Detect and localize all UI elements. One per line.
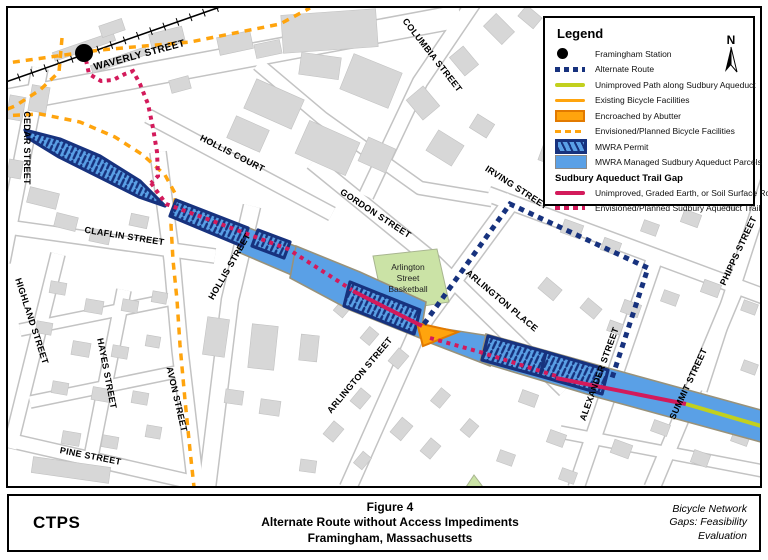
building (430, 388, 450, 409)
building (299, 334, 320, 362)
street-label: CEDAR STREET (22, 111, 32, 185)
building (259, 399, 281, 417)
building (129, 213, 149, 228)
legend-item: Unimproved Path along Sudbury Aqueduct (555, 77, 745, 93)
park-label: Basketball (388, 284, 427, 294)
building (496, 450, 515, 467)
building (227, 116, 270, 153)
legend-item: MWRA Managed Sudbury Aqueduct Parcels (555, 155, 745, 171)
legend-box: Legend N Framingham Station Alternate Ro… (543, 16, 755, 206)
building (299, 459, 317, 473)
building (51, 381, 69, 396)
planned-trail-icon (555, 206, 587, 210)
building (741, 360, 759, 375)
legend-item: Framingham Station (555, 46, 745, 62)
building (449, 46, 478, 76)
mwra-permit-icon (555, 139, 587, 154)
building (299, 52, 342, 79)
encroached-icon (555, 110, 587, 122)
building (580, 298, 602, 320)
report-name: Bicycle Network Gaps: Feasibility Evalua… (597, 503, 759, 544)
building (350, 388, 371, 409)
building (538, 277, 562, 301)
building (640, 220, 659, 237)
station-dot-icon (555, 48, 587, 59)
building (121, 299, 139, 314)
building (111, 345, 129, 360)
building (131, 391, 149, 406)
building (340, 54, 402, 109)
figure-name: Alternate Route without Access Impedimen… (183, 515, 597, 531)
framingham-station-marker (75, 44, 93, 62)
legend-gap-header: Sudbury Aqueduct Trail Gap (555, 173, 745, 184)
north-arrow: N (721, 34, 741, 79)
legend-item: Envisioned/Planned Sudbury Aqueduct Trai… (555, 201, 745, 217)
building (518, 5, 542, 29)
legend-item: Alternate Route (555, 62, 745, 78)
building (650, 419, 670, 436)
legend-item: Existing Bicycle Facilities (555, 93, 745, 109)
mwra-parcel-icon (555, 155, 587, 169)
building (483, 13, 514, 44)
park-label: Arlington (391, 262, 425, 272)
building (469, 114, 494, 138)
unimproved-path-icon (555, 83, 587, 87)
legend-item: MWRA Permit (555, 139, 745, 155)
building (151, 291, 168, 304)
figure-number: Figure 4 (183, 500, 597, 516)
building (420, 438, 441, 459)
legend-item: Envisioned/Planned Bicycle Facilities (555, 124, 745, 140)
building (248, 324, 278, 370)
north-label: N (721, 34, 741, 46)
figure-title: Figure 4 Alternate Route without Access … (183, 500, 597, 547)
soil-road-icon (555, 191, 587, 195)
building (360, 326, 379, 345)
building (390, 417, 413, 441)
building (224, 389, 244, 405)
green-space (466, 475, 483, 487)
building (145, 425, 162, 439)
building (323, 421, 344, 442)
building (426, 130, 464, 166)
existing-bike-icon (555, 99, 587, 102)
building (101, 435, 119, 450)
station (75, 44, 93, 62)
building (27, 187, 60, 210)
building (145, 335, 161, 348)
building (460, 418, 479, 437)
building (61, 431, 81, 447)
alternate-route-icon (555, 67, 587, 72)
legend-item: Unimproved, Graded Earth, or Soil Surfac… (555, 185, 745, 201)
park-label: Street (397, 273, 420, 283)
building (71, 341, 91, 358)
title-block: CTPS Figure 4 Alternate Route without Ac… (7, 494, 761, 552)
planned-bike-icon (555, 130, 587, 134)
legend-item: Encroached by Abutter (555, 108, 745, 124)
figure-page: WAVERLY STREETCEDAR STREETHOLLIS COURTCO… (0, 0, 768, 560)
building (660, 290, 679, 307)
north-arrow-icon (723, 46, 739, 74)
building (7, 159, 24, 179)
building (84, 299, 104, 315)
figure-location: Framingham, Massachusetts (183, 531, 597, 547)
building (518, 389, 538, 407)
agency-logo: CTPS (9, 513, 183, 533)
building (295, 120, 360, 175)
legend-title: Legend (557, 26, 745, 41)
building (49, 281, 67, 296)
